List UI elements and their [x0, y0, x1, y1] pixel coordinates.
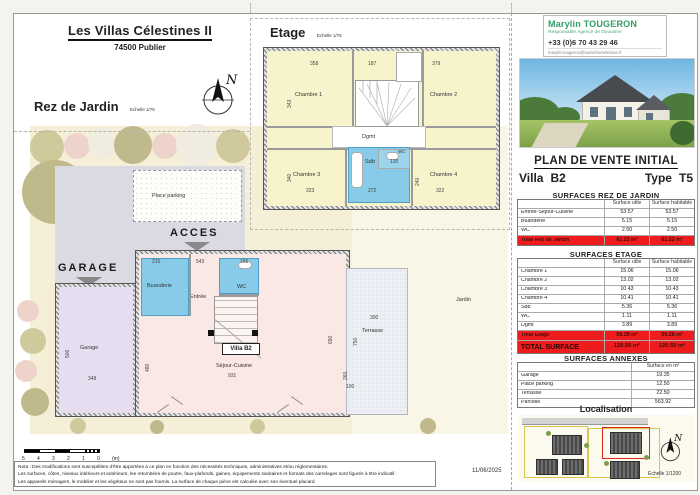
- villa-id: VillaB2: [519, 171, 566, 185]
- dimension-label: 166: [240, 260, 248, 265]
- table-row: Buanderie5.155.15: [518, 217, 694, 226]
- table-row: Surface utileSurface habitable: [518, 259, 694, 267]
- scale-ruler: [24, 449, 100, 453]
- nota-box: Nota : Des modifications sont susceptibl…: [14, 461, 436, 487]
- dimension-label: 272: [368, 189, 376, 194]
- dimension-label: 506: [66, 350, 71, 358]
- table-row: Chambre 213.0213.02: [518, 276, 694, 285]
- table-cell: 5.15: [604, 218, 649, 226]
- table-cell: 2.50: [604, 227, 649, 235]
- table-cell: Surface utile: [604, 259, 649, 267]
- map-scale: Echelle 1/1200: [648, 471, 681, 477]
- dimension-label: 100: [346, 385, 354, 390]
- dimension-label: 130: [390, 160, 398, 165]
- chambre4-label: Chambre 4: [430, 172, 457, 178]
- dimension-label: 215: [152, 260, 160, 265]
- dimension-label: 480: [146, 364, 151, 372]
- table-cell: Chambre 1: [518, 269, 604, 274]
- table-cell: Terrasse: [518, 391, 631, 396]
- rez-plan-title: Rez de Jardin Echelle 1/75: [34, 98, 155, 116]
- chambre1-label: Chambre 1: [295, 92, 322, 98]
- wall: [189, 254, 191, 316]
- map-bush: [546, 431, 551, 436]
- villa-tag: Villa B2: [222, 343, 260, 355]
- table-row: WC2.502.50: [518, 226, 694, 235]
- table-cell: Chambre 4: [518, 296, 604, 301]
- house-photo: [519, 58, 695, 148]
- dimension-label: 322: [436, 189, 444, 194]
- plan-date: 11/06/2025: [472, 468, 502, 474]
- table-cell: 120.50 m²: [604, 341, 649, 353]
- dimension-label: 358: [310, 62, 318, 67]
- table-cell: WC: [518, 314, 604, 319]
- stairs-etage: [355, 80, 419, 127]
- agent-phone: +33 (0)6 70 43 29 46: [548, 38, 662, 47]
- table-cell: 1.11: [649, 313, 694, 321]
- table-cell: Chambre 2: [518, 278, 604, 283]
- tree: [21, 388, 49, 416]
- table-row: TOTAL SURFACE120.50 m²120.50 m²: [518, 340, 694, 353]
- table-row: Entrée-Séjour-Cuisine53.5753.57: [518, 208, 694, 217]
- tree: [15, 360, 37, 382]
- jardin-label: Jardin: [456, 297, 471, 303]
- garage-callout: GARAGE: [58, 262, 118, 274]
- table-row: Surface utileSurface habitable: [518, 200, 694, 208]
- table-cell: Entrée-Séjour-Cuisine: [518, 210, 604, 215]
- dimension-label: 260: [344, 372, 349, 380]
- table-row: WC1.111.11: [518, 312, 694, 321]
- dimension-label: 240: [416, 178, 421, 186]
- fold-mark: [250, 3, 251, 13]
- table-cell: Dgmt: [518, 323, 604, 328]
- table-row: Total Etage59.28 m²59.28 m²: [518, 330, 694, 340]
- dimension-label: 750: [354, 338, 359, 346]
- dimension-label: 323: [306, 189, 314, 194]
- buanderie-label: Buanderie: [147, 283, 172, 289]
- table-cell: 53.57: [604, 209, 649, 217]
- table-cell: 19.35: [631, 372, 694, 380]
- nota-line2: Les surfaces, côtes, niveaux intérieurs …: [18, 471, 432, 478]
- agent-name: Marylin TOUGERON: [548, 19, 662, 29]
- table-cell: Surface habitable: [649, 259, 694, 267]
- photo-bush: [670, 121, 695, 145]
- plan-sheet-page: Les Villas Célestines II 74500 Publier P…: [0, 0, 700, 495]
- table-cell: 59.28 m²: [649, 331, 694, 340]
- dimension-label: 379: [432, 62, 440, 67]
- tree: [64, 133, 90, 159]
- map-building: [536, 459, 558, 475]
- north-compass-icon: N: [196, 72, 242, 120]
- dimension-label: 543: [196, 260, 204, 265]
- map-bush: [644, 455, 649, 460]
- agent-contact-card: Marylin TOUGERON Responsable Agence de D…: [543, 15, 667, 57]
- table-cell: 61.22 m²: [604, 236, 649, 245]
- map-bush: [584, 443, 589, 448]
- surfaces-etage-table: Surface utileSurface habitableChambre 11…: [517, 258, 695, 354]
- chambre3-label: Chambre 3: [293, 172, 320, 178]
- dimension-label: 300: [370, 316, 378, 321]
- table-cell: Total Etage: [518, 333, 604, 338]
- map-road: [522, 418, 648, 425]
- table-cell: TOTAL SURFACE: [518, 344, 604, 351]
- photo-window: [590, 107, 598, 117]
- villa-type: TypeT5: [645, 171, 693, 185]
- bath-fixture: [351, 152, 363, 188]
- photo-window: [624, 107, 632, 117]
- closet: [396, 52, 422, 82]
- terrasse-label: Terrasse: [362, 328, 383, 334]
- table-cell: Surface en m²: [631, 363, 694, 371]
- etage-plan-title: Etage Echelle 1/75: [270, 24, 342, 42]
- dimension-label: 340: [288, 174, 293, 182]
- post: [208, 330, 214, 336]
- table-row: Chambre 410.4110.41: [518, 294, 694, 303]
- entree-label: Entrée: [190, 294, 206, 300]
- table-row: Garage19.35: [518, 371, 694, 380]
- shrub: [250, 419, 265, 434]
- table-cell: WC: [518, 228, 604, 233]
- chambre2-label: Chambre 2: [430, 92, 457, 98]
- fold-line: [14, 131, 250, 132]
- table-row: Total Rez de Jardin61.22 m²61.22 m²: [518, 235, 694, 245]
- dimension-label: 343: [288, 100, 293, 108]
- table-row: Chambre 115.0615.06: [518, 267, 694, 276]
- shrub: [70, 418, 86, 434]
- table-cell: 10.43: [649, 286, 694, 294]
- map-building: [562, 459, 584, 475]
- tree: [152, 133, 178, 159]
- table-cell: 13.02: [604, 277, 649, 285]
- tree: [30, 130, 64, 164]
- table-row: Chambre 310.4310.43: [518, 285, 694, 294]
- localisation-map: N Echelle 1/1200: [518, 415, 695, 482]
- surfaces-annexes-table: Surface en m²Garage19.35Place parking12.…: [517, 362, 695, 408]
- dimension-label: 690: [329, 336, 334, 344]
- table-row: Dgmt3.893.89: [518, 321, 694, 330]
- table-cell: Chambre 3: [518, 287, 604, 292]
- table-cell: Surface utile: [604, 200, 649, 208]
- table-cell: 53.57: [649, 209, 694, 217]
- wc-label-rez: WC: [237, 284, 246, 290]
- dimension-label: 931: [228, 374, 236, 379]
- table-row: Sdb5.365.36: [518, 303, 694, 312]
- wall: [411, 148, 413, 206]
- tree: [17, 300, 39, 322]
- table-cell: 12.50: [631, 381, 694, 389]
- sejour-label: Séjour-Cuisine: [216, 363, 252, 369]
- sdb-label: Sdb: [365, 159, 375, 165]
- sale-heading: PLAN DE VENTE INITIAL: [517, 155, 695, 167]
- map-compass-icon: N: [656, 433, 686, 465]
- shrub: [420, 418, 436, 434]
- nota-line1: Nota : Des modifications sont susceptibl…: [18, 464, 432, 471]
- fold-mark: [511, 3, 512, 13]
- svg-text:N: N: [673, 434, 683, 444]
- dimension-label: 187: [368, 62, 376, 67]
- map-building: [552, 435, 582, 455]
- localisation-title: Localisation: [517, 404, 695, 414]
- wc-label-etage: WC: [398, 149, 406, 154]
- project-address: 74500 Publier: [40, 43, 240, 52]
- table-cell: 5.36: [604, 304, 649, 312]
- tree: [20, 328, 46, 354]
- etage-plan-scale: Echelle 1/75: [317, 33, 342, 38]
- surfaces-rez-table: Surface utileSurface habitableEntrée-Séj…: [517, 199, 695, 246]
- map-building-villa-b2: [610, 432, 642, 454]
- project-title: Les Villas Célestines II: [68, 23, 212, 41]
- table-cell: Total Rez de Jardin: [518, 238, 604, 243]
- parking-spot: Place parking: [133, 170, 242, 222]
- table-cell: Surface habitable: [649, 200, 694, 208]
- table-cell: 15.06: [649, 268, 694, 276]
- table-cell: 1.11: [604, 313, 649, 321]
- wall: [345, 148, 347, 206]
- post: [252, 330, 258, 336]
- agent-role: Responsable Agence de Douvaine: [548, 30, 662, 35]
- table-cell: 10.41: [604, 295, 649, 303]
- table-cell: 3.89: [604, 322, 649, 330]
- table-cell: 120.50 m²: [649, 341, 694, 353]
- dgmt-label: Dgmt: [362, 134, 375, 140]
- table-cell: 5.36: [649, 304, 694, 312]
- table-cell: 10.41: [649, 295, 694, 303]
- nota-line3: Les appareils ménagers, le mobilier et l…: [18, 479, 432, 486]
- rez-plan-scale: Echelle 1/75: [130, 107, 155, 112]
- table-cell: 13.02: [649, 277, 694, 285]
- table-cell: 2.50: [649, 227, 694, 235]
- table-cell: 59.28 m²: [604, 331, 649, 340]
- table-cell: Place parking: [518, 382, 631, 387]
- table-cell: Garage: [518, 373, 631, 378]
- table-cell: Buanderie: [518, 219, 604, 224]
- agent-email: marylin.tougeron@sweethomeleman.fr: [548, 48, 662, 55]
- wall: [422, 51, 424, 127]
- map-building: [610, 461, 640, 479]
- dimension-label: 348: [88, 377, 96, 382]
- garage-room-label: Garage: [80, 345, 98, 351]
- title-block: Les Villas Célestines II 74500 Publier: [40, 22, 240, 52]
- table-cell: 22.50: [631, 390, 694, 398]
- acces-callout: ACCES: [170, 227, 219, 239]
- tree: [216, 129, 250, 163]
- table-row: Terrasse22.50: [518, 389, 694, 398]
- wall: [352, 51, 354, 127]
- table-row: Place parking12.50: [518, 380, 694, 389]
- table-cell: 10.43: [604, 286, 649, 294]
- table-cell: 5.15: [649, 218, 694, 226]
- table-cell: 61.22 m²: [649, 236, 694, 245]
- table-row: Surface en m²: [518, 363, 694, 371]
- table-cell: Sdb: [518, 305, 604, 310]
- corridor: [332, 126, 426, 148]
- shrub: [150, 420, 164, 434]
- table-cell: 15.06: [604, 268, 649, 276]
- parking-label: Place parking: [152, 193, 185, 199]
- map-bush: [604, 461, 609, 466]
- panel-separator: [511, 13, 512, 490]
- photo-roof: [636, 95, 672, 110]
- north-letter: N: [225, 73, 238, 88]
- table-cell: 3.89: [649, 322, 694, 330]
